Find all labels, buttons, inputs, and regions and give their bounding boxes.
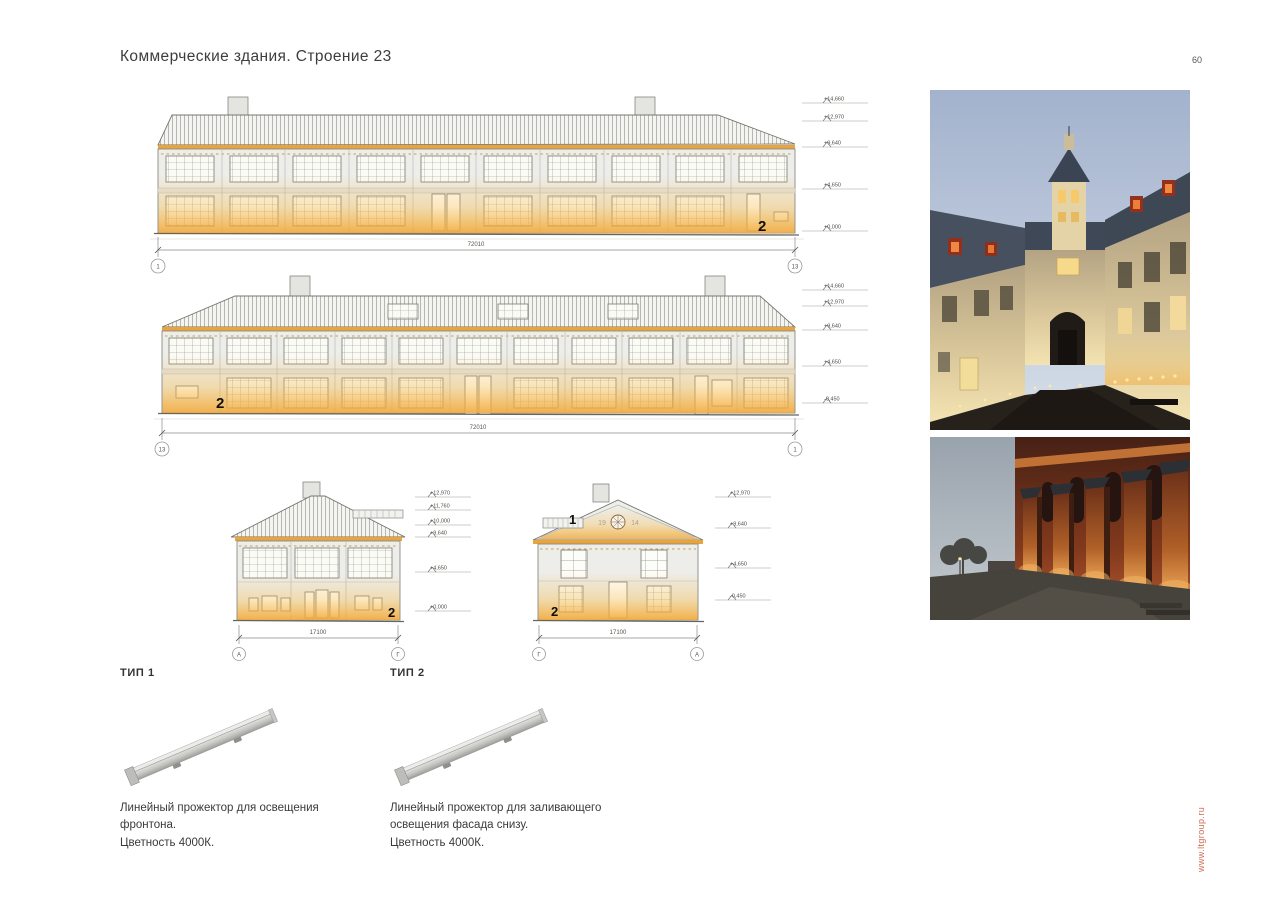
level-mark: +4,650 (824, 360, 841, 366)
axis-label: А (237, 653, 241, 659)
product-type-2-label: ТИП 2 (390, 667, 425, 679)
product-description-1: Линейный прожектор для освещения фронтон… (120, 800, 390, 852)
long-elevation-front-drawing: 2 72010 1 13 +14,660 +12,970 +9,640 +4,6… (120, 85, 875, 275)
lit-cornice-band (235, 537, 402, 541)
level-mark: +14,660 (824, 284, 844, 290)
roof (162, 296, 795, 327)
lit-cornice-band (158, 145, 795, 149)
bench (1130, 399, 1178, 405)
marker-type-2: 2 (216, 395, 224, 412)
marker-type-2: 2 (388, 605, 395, 620)
level-marks: +14,660 +12,970 +9,640 +4,650 -0,450 (802, 284, 868, 404)
description-line: освещения фасада снизу. (390, 817, 670, 834)
building-facade (154, 276, 804, 419)
website-url: www.ltgroup.ru (1196, 786, 1206, 872)
level-mark: +12,970 (824, 300, 844, 306)
building-facade (150, 97, 804, 239)
level-mark: +10,000 (430, 519, 450, 525)
floodlight-glow (238, 575, 400, 620)
level-mark: +9,640 (430, 531, 447, 537)
description-line: фронтона. (120, 817, 390, 834)
long-elevation-back-drawing: 2 72010 13 1 +14,660 +12,970 +9,640 +4,6… (120, 268, 875, 458)
photo-brick-facade-lighting (930, 437, 1190, 620)
marker-type-1: 1 (569, 512, 576, 527)
level-mark: +12,970 (430, 491, 450, 497)
floodlight-glow (159, 175, 795, 233)
level-mark: +0,000 (430, 605, 447, 611)
page-number: 60 (1192, 55, 1202, 65)
level-mark: +9,640 (730, 522, 747, 528)
gatehouse-tower (1052, 182, 1086, 250)
level-mark: +9,640 (824, 141, 841, 147)
level-mark: +11,760 (430, 504, 450, 510)
gable-year-right: 14 (631, 520, 639, 527)
axis-bubbles: А Г (233, 648, 405, 661)
product-description-2: Линейный прожектор для заливающего освещ… (390, 800, 670, 852)
level-marks: +12,970 +9,640 +4,650 -0,450 (715, 491, 771, 601)
dimension-line: 17100 (536, 625, 700, 644)
dimension-value: 72010 (470, 425, 487, 431)
floodlight-glow (539, 572, 698, 620)
end-elevation-left-drawing: 2 17100 А Г +12,970 +11,760 +10,000 +9,6… (225, 480, 475, 665)
window-row-upper (243, 548, 392, 578)
level-mark: +0,000 (824, 225, 841, 231)
album-page: Коммерческие здания. Строение 23 60 (0, 0, 1280, 905)
dimension-line: 17100 (236, 625, 401, 644)
lit-cornice-band (162, 327, 795, 331)
level-mark: +4,650 (430, 566, 447, 572)
axis-bubbles: Г А (533, 648, 704, 661)
level-mark: +4,650 (730, 562, 747, 568)
dimension-value: 17100 (610, 630, 627, 636)
level-mark: +4,650 (824, 183, 841, 189)
description-line: Цветность 4000К. (120, 835, 390, 852)
building-facade (231, 482, 405, 622)
page-title: Коммерческие здания. Строение 23 (120, 48, 392, 66)
level-mark: +12,970 (824, 115, 844, 121)
description-line: Цветность 4000К. (390, 835, 670, 852)
axis-label: А (695, 653, 699, 659)
level-mark: -0,450 (824, 397, 840, 403)
photo-courtyard-lighting (930, 90, 1190, 430)
level-marks: +14,660 +12,970 +9,640 +4,650 +0,000 (802, 97, 868, 232)
dimension-value: 17100 (310, 630, 327, 636)
level-mark: +12,970 (730, 491, 750, 497)
product-image-linear-floodlight-type1 (118, 690, 308, 790)
product-type-1-label: ТИП 1 (120, 667, 155, 679)
marker-type-2: 2 (758, 218, 766, 235)
description-line: Линейный прожектор для освещения (120, 800, 390, 817)
dimension-line: 72010 (155, 237, 798, 257)
marker-type-2: 2 (551, 604, 558, 619)
axis-label: 13 (159, 448, 166, 454)
lit-cornice-band (533, 540, 703, 544)
dimension-value: 72010 (468, 242, 485, 248)
axis-bubbles: 13 1 (155, 442, 802, 456)
description-line: Линейный прожектор для заливающего (390, 800, 670, 817)
roof (158, 115, 795, 145)
gable-year-left: 19 (598, 520, 606, 527)
rooftop-rail (353, 510, 403, 518)
level-mark: +9,640 (824, 324, 841, 330)
level-mark: +14,660 (824, 97, 844, 103)
dimension-line: 72010 (159, 418, 798, 440)
level-marks: +12,970 +11,760 +10,000 +9,640 +4,650 +0… (415, 491, 471, 612)
building-facade: 19 14 (533, 484, 704, 622)
level-mark: -0,450 (730, 594, 746, 600)
end-elevation-right-drawing: 19 14 1 2 17100 (525, 480, 775, 665)
product-image-linear-floodlight-type2 (388, 690, 578, 790)
floodlight-glow (163, 354, 795, 413)
